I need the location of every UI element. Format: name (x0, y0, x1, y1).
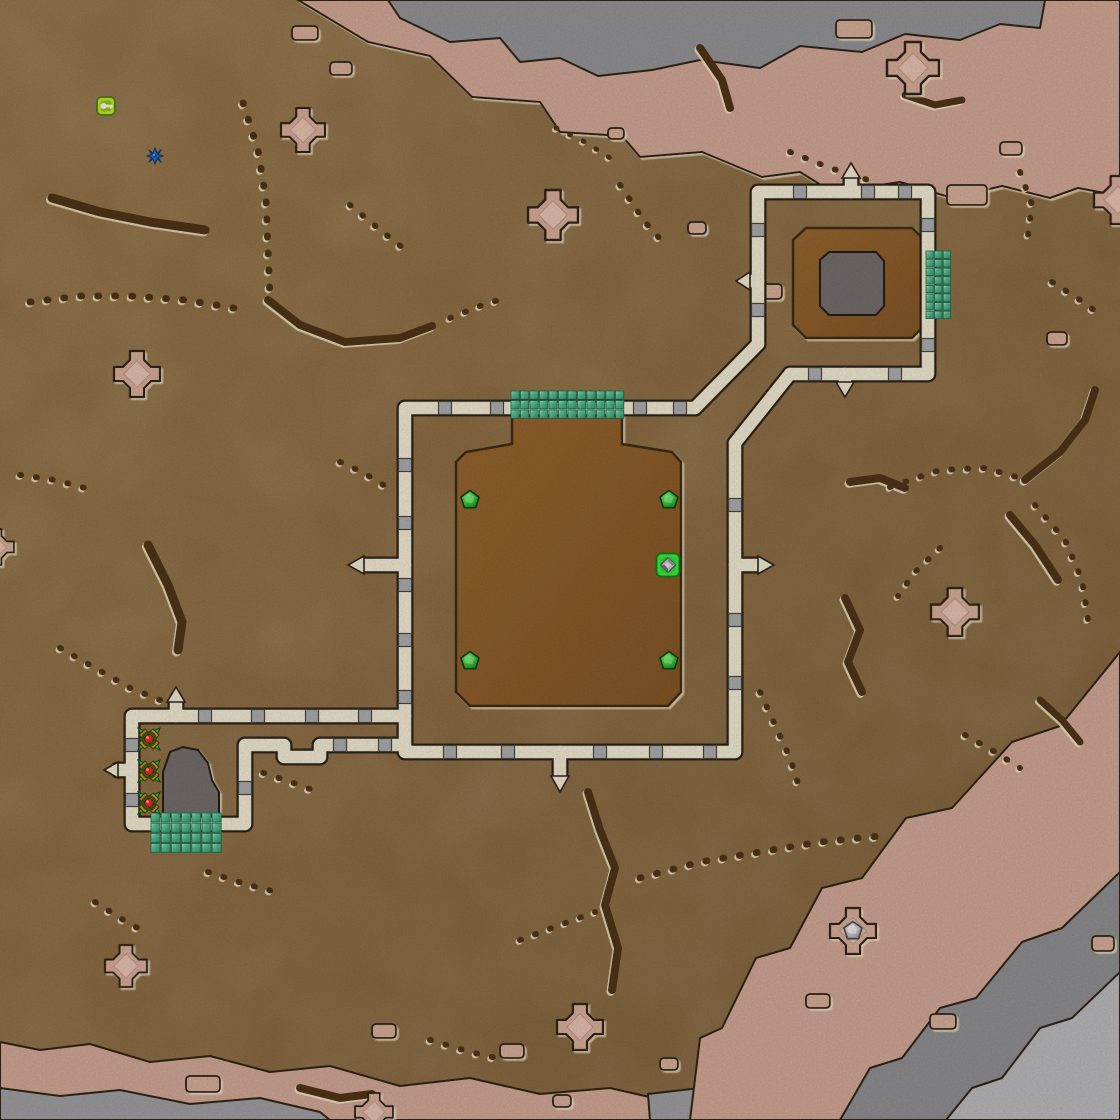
terrain-grain (0, 0, 1120, 1120)
game-map[interactable] (0, 0, 1120, 1120)
game-map-viewport[interactable] (0, 0, 1120, 1120)
